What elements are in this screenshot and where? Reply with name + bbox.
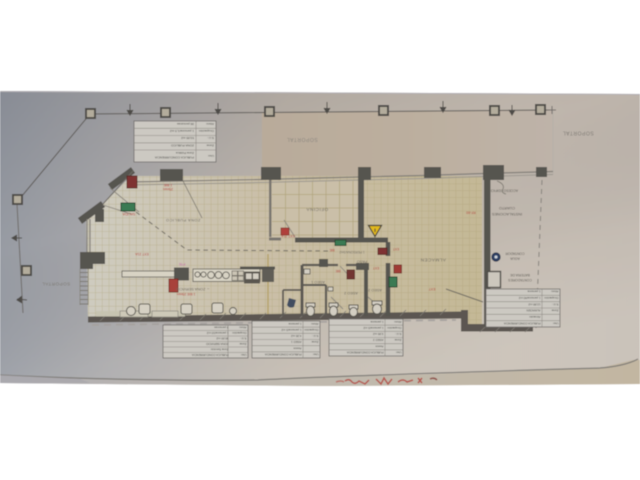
svg-text:ZONA PUBLICO: ZONA PUBLICO: [171, 144, 194, 148]
svg-text:36 personas: 36 personas: [177, 122, 194, 126]
svg-text:S.U.:: S.U.:: [552, 302, 559, 306]
svg-text:Ocupación:: Ocupación:: [232, 331, 247, 335]
svg-text:3,95 m2: 3,95 m2: [373, 332, 384, 336]
svg-text:EXT: EXT: [393, 247, 399, 251]
svg-text:OFICINA: OFICINA: [306, 207, 329, 212]
svg-text:BATERIA DE: BATERIA DE: [509, 273, 529, 277]
svg-text:Zona:: Zona:: [394, 338, 402, 342]
svg-text:4,35 m2: 4,35 m2: [291, 334, 302, 338]
svg-text:53,85 m2: 53,85 m2: [181, 136, 194, 140]
svg-text:ASEO 2: ASEO 2: [368, 288, 382, 292]
svg-text:Uso:: Uso:: [552, 321, 558, 325]
svg-text:Zona:: Zona:: [311, 340, 319, 344]
svg-text:Almacén: Almacén: [529, 315, 541, 319]
svg-text:ASEO 1: ASEO 1: [291, 340, 302, 344]
svg-text:Zona:: Zona:: [206, 144, 214, 148]
svg-text:1 persona/10 m2: 1 persona/10 m2: [206, 331, 228, 335]
svg-text:ASEO 2: ASEO 2: [373, 338, 384, 342]
svg-text:Ocupación:: Ocupación:: [387, 326, 402, 330]
svg-text:Zona Servicio: Zona Servicio: [210, 347, 228, 351]
svg-text:EXT 21A: EXT 21A: [281, 234, 295, 238]
svg-text:Zona:: Zona:: [551, 309, 559, 313]
svg-text:1 persona/3 m2: 1 persona/3 m2: [281, 328, 301, 332]
svg-text:Zona:: Zona:: [239, 342, 247, 346]
svg-text:Ocupación:: Ocupación:: [198, 129, 214, 133]
svg-text:ASEO 2: ASEO 2: [344, 291, 358, 295]
svg-text:ALMACEN: ALMACEN: [527, 309, 541, 313]
svg-text:RF-60: RF-60: [466, 211, 476, 215]
svg-text:1 persona/40 m2: 1 persona/40 m2: [518, 296, 540, 300]
svg-text:PUBLICA CONCURRENCIA: PUBLICA CONCURRENCIA: [192, 353, 229, 357]
svg-text:AGUA: AGUA: [509, 257, 519, 261]
svg-text:1 persona: 1 persona: [370, 320, 383, 324]
svg-text:SOPORTAL: SOPORTAL: [286, 136, 318, 142]
svg-text:1 persona: 1 persona: [527, 290, 540, 294]
svg-text:1 BIE: 1 BIE: [163, 183, 172, 187]
svg-text:12,88 m2: 12,88 m2: [528, 302, 540, 306]
svg-text:Aforo:: Aforo:: [239, 325, 247, 329]
svg-text:Aseos: Aseos: [293, 346, 302, 350]
svg-text:EXT: EXT: [429, 287, 436, 291]
svg-text:Uso:: Uso:: [207, 154, 214, 158]
svg-text:ZONA PUBLICO: ZONA PUBLICO: [166, 218, 201, 223]
svg-text:Aforo:: Aforo:: [311, 322, 319, 326]
svg-text:Aforo:: Aforo:: [551, 290, 559, 294]
svg-text:INSTALACIONES: INSTALACIONES: [491, 212, 522, 216]
svg-text:S.U.:: S.U.:: [312, 334, 319, 338]
svg-text:PUBLICA CONCURRENCIA: PUBLICA CONCURRENCIA: [265, 353, 302, 357]
svg-text:S.U.:: S.U.:: [240, 336, 247, 340]
svg-text:Uso:: Uso:: [395, 351, 401, 355]
svg-text:S.U.:: S.U.:: [395, 332, 402, 336]
svg-text:CONTADORES: CONTADORES: [507, 278, 531, 282]
svg-text:1 PERSONA/3m2: 1 PERSONA/3m2: [339, 250, 365, 254]
svg-text:SOPORTAL: SOPORTAL: [562, 129, 594, 135]
svg-text:SALIDA: SALIDA: [122, 212, 135, 216]
svg-text:30,00 m2: 30,00 m2: [216, 336, 228, 340]
svg-text:PUBLICA CONCURRENCIA: PUBLICA CONCURRENCIA: [154, 156, 194, 160]
svg-text:BIE: BIE: [335, 269, 340, 273]
svg-text:Aforo:: Aforo:: [394, 320, 402, 324]
svg-text:Zona Pública: Zona Pública: [176, 151, 194, 155]
svg-text:EXT: EXT: [373, 266, 379, 270]
svg-text:ALMACEN: ALMACEN: [420, 258, 446, 263]
svg-text:PASO: PASO: [357, 260, 367, 264]
svg-text:EXT 21A: EXT 21A: [135, 252, 149, 256]
svg-text:Uso:: Uso:: [240, 353, 246, 357]
svg-text:SOPORTAL: SOPORTAL: [42, 282, 71, 287]
svg-text:1 BIE 25mm: 1 BIE 25mm: [176, 292, 195, 296]
svg-text:→ ZONA SERVICIO: → ZONA SERVICIO: [176, 287, 210, 291]
svg-text:S.U.:: S.U.:: [207, 136, 214, 140]
svg-text:PUBLICA CONCURRENCIA: PUBLICA CONCURRENCIA: [504, 321, 541, 325]
svg-text:ZONA SERVICIO: ZONA SERVICIO: [205, 342, 228, 346]
svg-text:PUBLICA CONCURRENCIA: PUBLICA CONCURRENCIA: [347, 351, 384, 355]
svg-text:Uso:: Uso:: [312, 353, 318, 357]
svg-text:PTE: PTE: [178, 262, 185, 266]
svg-text:CUARTO: CUARTO: [499, 206, 515, 210]
svg-text:25mm: 25mm: [163, 187, 173, 191]
svg-text:Ocupación:: Ocupación:: [544, 296, 559, 300]
svg-text:3 personas: 3 personas: [214, 325, 229, 329]
svg-text:1 persona/1,5 m2: 1 persona/1,5 m2: [170, 129, 194, 133]
svg-text:ASEO 1: ASEO 1: [311, 280, 325, 284]
svg-text:Aseos: Aseos: [375, 344, 384, 348]
svg-text:1 persona: 1 persona: [288, 322, 301, 326]
svg-text:1 persona/3 m2: 1 persona/3 m2: [363, 326, 383, 330]
svg-text:Ocupación:: Ocupación:: [304, 328, 319, 332]
svg-text:CONTADOR: CONTADOR: [505, 252, 525, 256]
svg-text:Aforo:: Aforo:: [206, 122, 214, 126]
svg-text:BIE: BIE: [329, 248, 334, 252]
